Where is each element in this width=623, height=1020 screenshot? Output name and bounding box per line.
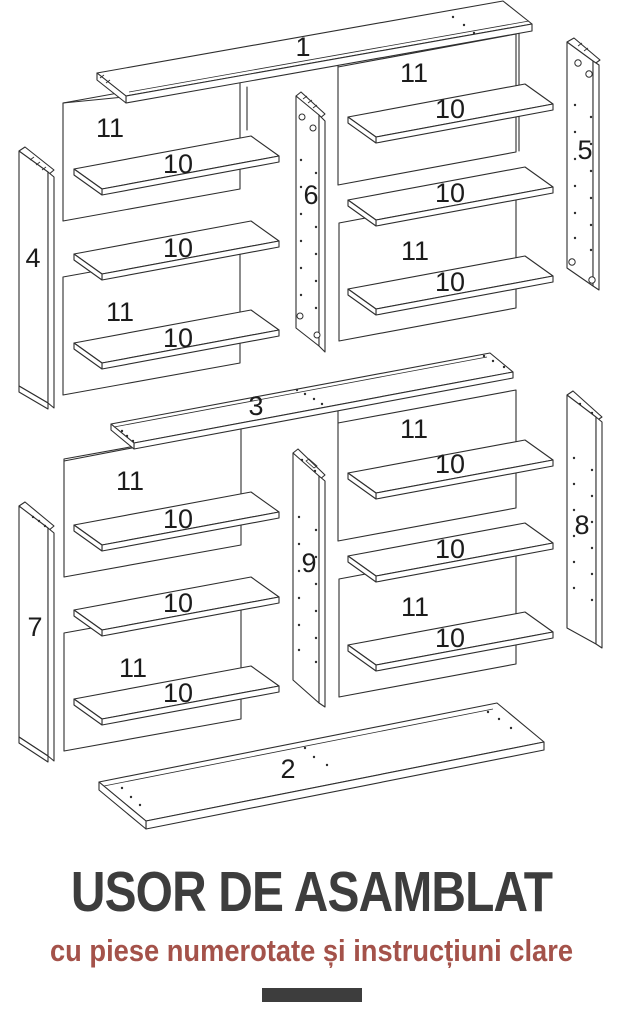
part-label-11: 11 <box>401 592 429 622</box>
page: 1111010111011101011104653111010111011101… <box>0 0 623 1020</box>
part-label-10: 10 <box>435 267 465 297</box>
part-label-10: 10 <box>435 534 465 564</box>
part-label-6: 6 <box>303 180 318 210</box>
part-label-1: 1 <box>295 32 310 62</box>
part-label-8: 8 <box>574 510 589 540</box>
part-label-10: 10 <box>163 323 193 353</box>
part-label-7: 7 <box>27 612 42 642</box>
footer-accent-bar <box>262 988 362 1002</box>
part-label-10: 10 <box>163 588 193 618</box>
part-label-3: 3 <box>248 391 263 421</box>
part-6-divider <box>296 92 325 352</box>
part-label-11: 11 <box>400 414 428 444</box>
part-label-10: 10 <box>163 678 193 708</box>
part-label-5: 5 <box>577 135 592 165</box>
part-label-2: 2 <box>280 754 295 784</box>
part-label-10: 10 <box>163 504 193 534</box>
part-label-10: 10 <box>435 94 465 124</box>
part-label-10: 10 <box>163 149 193 179</box>
part-label-11: 11 <box>96 113 124 143</box>
part-4-side-panel <box>19 147 54 409</box>
footer-title: USOR DE ASAMBLAT <box>50 864 573 921</box>
part-label-10: 10 <box>435 623 465 653</box>
part-label-10: 10 <box>435 178 465 208</box>
part-label-4: 4 <box>25 243 40 273</box>
part-label-11: 11 <box>400 58 428 88</box>
part-label-11: 11 <box>106 297 134 327</box>
part-label-11: 11 <box>116 466 144 496</box>
footer-subtitle: cu piese numerotate și instrucțiuni clar… <box>37 934 585 968</box>
part-label-10: 10 <box>163 233 193 263</box>
part-9-divider <box>293 449 325 707</box>
part-label-11: 11 <box>401 236 429 266</box>
part-label-9: 9 <box>301 548 316 578</box>
part-label-11: 11 <box>119 653 147 683</box>
part-label-10: 10 <box>435 449 465 479</box>
